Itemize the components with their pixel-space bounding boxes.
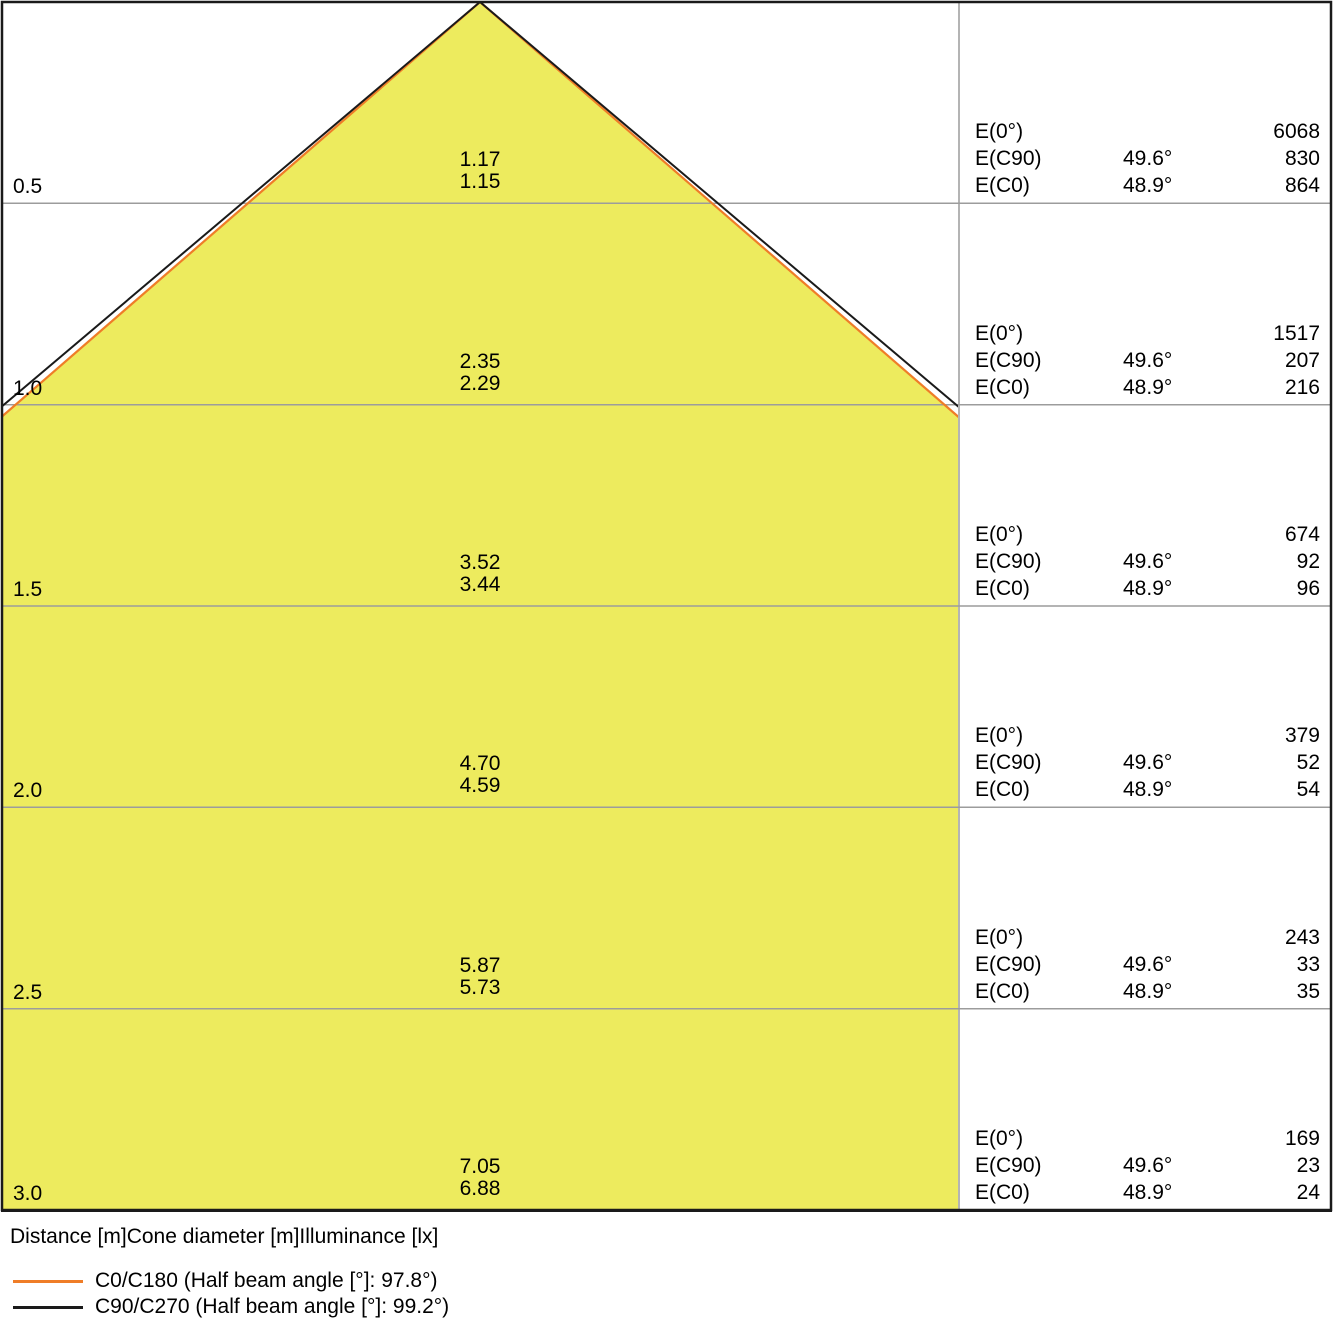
cone-diameter-labels: 3.523.44: [380, 552, 580, 596]
illuminance-value: 207: [1285, 349, 1320, 373]
illuminance-label: E(C0): [975, 1181, 1030, 1205]
illuminance-value: 830: [1285, 147, 1320, 171]
cone-diameter-c0: 6.88: [380, 1178, 580, 1200]
illuminance-label: E(C0): [975, 577, 1030, 601]
distance-label: 1.5: [13, 578, 42, 602]
half-beam-angle-value: 48.9°: [1123, 1181, 1172, 1205]
illuminance-row: E(C90)49.6°23: [975, 1154, 1320, 1178]
illuminance-row: E(C0)48.9°24: [975, 1181, 1320, 1205]
cone-diameter-c0: 5.73: [380, 977, 580, 999]
half-beam-angle-value: 49.6°: [1123, 147, 1172, 171]
illuminance-value: 216: [1285, 376, 1320, 400]
illuminance-row: E(0°)243: [975, 926, 1320, 950]
distance-label: 2.0: [13, 779, 42, 803]
cone-diameter-c90: 5.87: [380, 955, 580, 977]
cone-diameter-labels: 2.352.29: [380, 351, 580, 395]
illuminance-value: 1517: [1273, 322, 1320, 346]
half-beam-angle-value: 49.6°: [1123, 751, 1172, 775]
legend-line-c0-icon: [13, 1280, 83, 1283]
distance-label: 3.0: [13, 1182, 42, 1206]
legend-label-c0: C0/C180 (Half beam angle [°]: 97.8°): [95, 1269, 437, 1293]
illuminance-row: E(0°)379: [975, 724, 1320, 748]
axis-caption: Distance [m]Cone diameter [m]Illuminance…: [10, 1225, 438, 1249]
illuminance-value: 864: [1285, 174, 1320, 198]
illuminance-value: 33: [1297, 953, 1320, 977]
half-beam-angle-value: 48.9°: [1123, 376, 1172, 400]
illuminance-label: E(0°): [975, 724, 1023, 748]
legend-label-c90: C90/C270 (Half beam angle [°]: 99.2°): [95, 1295, 449, 1319]
illuminance-label: E(0°): [975, 1127, 1023, 1151]
cone-diameter-c90: 4.70: [380, 753, 580, 775]
cone-diameter-labels: 7.056.88: [380, 1156, 580, 1200]
illuminance-label: E(C0): [975, 980, 1030, 1004]
illuminance-row: E(C90)49.6°92: [975, 550, 1320, 574]
legend-line-c90-icon: [13, 1306, 83, 1309]
half-beam-angle-value: 49.6°: [1123, 550, 1172, 574]
cone-diameter-c90: 2.35: [380, 351, 580, 373]
illuminance-value: 92: [1297, 550, 1320, 574]
cone-diameter-labels: 1.171.15: [380, 149, 580, 193]
illuminance-value: 24: [1297, 1181, 1320, 1205]
illuminance-label: E(C90): [975, 751, 1042, 775]
cone-diameter-labels: 4.704.59: [380, 753, 580, 797]
half-beam-angle-value: 48.9°: [1123, 980, 1172, 1004]
distance-label: 2.5: [13, 981, 42, 1005]
cone-diameter-c90: 7.05: [380, 1156, 580, 1178]
illuminance-row: E(0°)1517: [975, 322, 1320, 346]
illuminance-value: 35: [1297, 980, 1320, 1004]
illuminance-row: E(C0)48.9°864: [975, 174, 1320, 198]
half-beam-angle-value: 49.6°: [1123, 1154, 1172, 1178]
illuminance-value: 23: [1297, 1154, 1320, 1178]
illuminance-value: 54: [1297, 778, 1320, 802]
cone-diameter-c0: 3.44: [380, 574, 580, 596]
half-beam-angle-value: 49.6°: [1123, 953, 1172, 977]
cone-diameter-c90: 3.52: [380, 552, 580, 574]
half-beam-angle-value: 49.6°: [1123, 349, 1172, 373]
illuminance-label: E(C90): [975, 147, 1042, 171]
cone-diameter-c90: 1.17: [380, 149, 580, 171]
illuminance-row: E(C90)49.6°207: [975, 349, 1320, 373]
cone-diameter-labels: 5.875.73: [380, 955, 580, 999]
illuminance-row: E(C0)48.9°216: [975, 376, 1320, 400]
illuminance-value: 96: [1297, 577, 1320, 601]
illuminance-row: E(C0)48.9°96: [975, 577, 1320, 601]
illuminance-row: E(C0)48.9°35: [975, 980, 1320, 1004]
illuminance-label: E(C0): [975, 174, 1030, 198]
illuminance-label: E(C90): [975, 550, 1042, 574]
cone-diameter-c0: 1.15: [380, 171, 580, 193]
half-beam-angle-value: 48.9°: [1123, 577, 1172, 601]
illuminance-value: 52: [1297, 751, 1320, 775]
distance-label: 1.0: [13, 377, 42, 401]
illuminance-label: E(C90): [975, 1154, 1042, 1178]
illuminance-row: E(0°)6068: [975, 120, 1320, 144]
illuminance-label: E(C0): [975, 778, 1030, 802]
illuminance-row: E(C90)49.6°33: [975, 953, 1320, 977]
illuminance-value: 379: [1285, 724, 1320, 748]
illuminance-label: E(0°): [975, 322, 1023, 346]
illuminance-label: E(0°): [975, 523, 1023, 547]
half-beam-angle-value: 48.9°: [1123, 778, 1172, 802]
illuminance-row: E(0°)169: [975, 1127, 1320, 1151]
illuminance-row: E(0°)674: [975, 523, 1320, 547]
half-beam-angle-value: 48.9°: [1123, 174, 1172, 198]
illuminance-label: E(C0): [975, 376, 1030, 400]
illuminance-value: 674: [1285, 523, 1320, 547]
illuminance-label: E(0°): [975, 120, 1023, 144]
illuminance-label: E(C90): [975, 349, 1042, 373]
illuminance-label: E(0°): [975, 926, 1023, 950]
illuminance-value: 169: [1285, 1127, 1320, 1151]
illuminance-value: 6068: [1273, 120, 1320, 144]
illuminance-row: E(C90)49.6°52: [975, 751, 1320, 775]
cone-diameter-c0: 2.29: [380, 373, 580, 395]
cone-diameter-c0: 4.59: [380, 775, 580, 797]
cone-diagram-figure: 0.51.171.15E(0°)6068E(C90)49.6°830E(C0)4…: [0, 0, 1334, 1334]
distance-label: 0.5: [13, 175, 42, 199]
illuminance-value: 243: [1285, 926, 1320, 950]
illuminance-row: E(C0)48.9°54: [975, 778, 1320, 802]
illuminance-row: E(C90)49.6°830: [975, 147, 1320, 171]
illuminance-label: E(C90): [975, 953, 1042, 977]
